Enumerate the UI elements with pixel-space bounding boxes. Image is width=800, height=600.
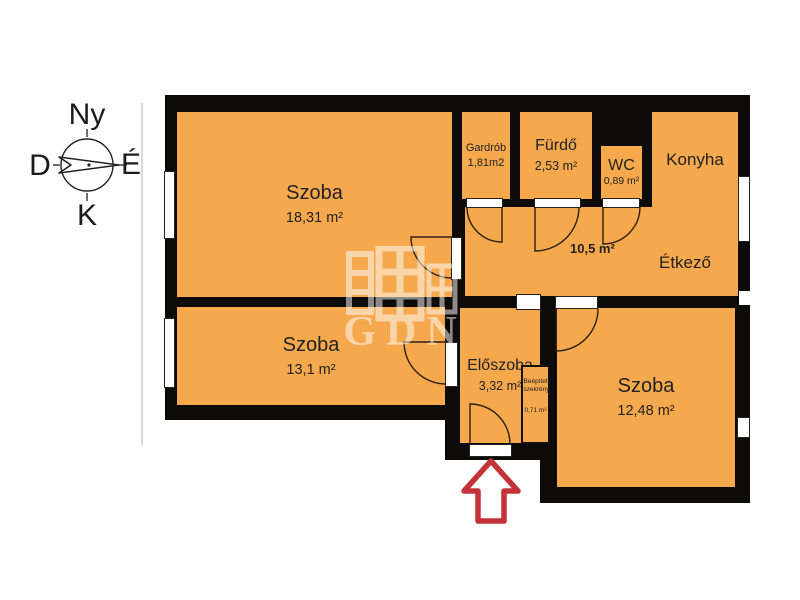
room-area: 18,31 m²: [286, 210, 343, 226]
window-left-upper: [164, 171, 175, 239]
room-name: Szoba: [283, 335, 340, 356]
scan-artifact-line: [141, 103, 143, 445]
room-area: 1,81m2: [468, 157, 505, 169]
room-szoba-large: Szoba 18,31 m²: [177, 112, 452, 297]
compass-south-label: D: [29, 149, 51, 182]
room-szoba-mid: Szoba 13,1 m²: [177, 307, 445, 405]
closet-szekreny: Beépített szekrény 0,71 m²: [521, 365, 550, 444]
compass-east-label: K: [77, 199, 97, 232]
entrance-door-threshold: [469, 444, 512, 457]
compass-north-label: É: [121, 148, 141, 181]
room-name: Szoba: [286, 183, 343, 204]
compass-needle: [59, 157, 119, 173]
door-threshold-furdo: [534, 198, 581, 208]
room-area: 0,89 m²: [604, 175, 640, 187]
closet-area: 0,71 m²: [524, 407, 546, 414]
entrance-arrow: [455, 450, 527, 530]
hall-area: 10,5 m²: [570, 241, 615, 256]
compass-center-dot: [87, 163, 90, 166]
room-name: Fürdő: [535, 138, 577, 155]
wall-seam: [739, 291, 750, 305]
room-area: 12,48 m²: [617, 403, 674, 419]
door-threshold-szoba-small: [555, 296, 598, 309]
opening-hall-eloszoba: [516, 294, 541, 310]
room-name-etkezo: Étkező: [640, 253, 730, 273]
closet-name: Beépített szekrény: [524, 378, 548, 394]
room-name: Gardrób: [466, 142, 506, 154]
door-threshold-gardrob: [466, 198, 503, 208]
room-hall-etkezo: 10,5 m² Étkező: [465, 207, 738, 296]
room-name: WC: [608, 158, 635, 175]
door-threshold-szoba-large: [451, 237, 462, 280]
window-right-upper: [738, 176, 750, 242]
floor-plan: Szoba 18,31 m² Gardrób 1,81m2 Fürdő 2,53…: [0, 0, 800, 600]
room-name: Szoba: [618, 376, 675, 397]
room-furdo: Fürdő 2,53 m²: [520, 112, 592, 199]
compass-west-label: Ny: [69, 98, 106, 131]
room-area: 3,32 m²: [479, 379, 521, 393]
room-wc: WC 0,89 m²: [601, 146, 642, 199]
room-gardrob: Gardrób 1,81m2: [462, 112, 510, 199]
door-threshold-szoba-mid: [445, 342, 458, 387]
room-konyha: Konyha: [652, 112, 738, 207]
window-right-lower: [737, 417, 750, 438]
door-threshold-wc: [602, 198, 640, 208]
room-name: Konyha: [666, 150, 724, 170]
room-area: 2,53 m²: [535, 159, 577, 173]
room-szoba-small: Szoba 12,48 m²: [557, 308, 735, 487]
entrance-arrow-shape: [464, 461, 518, 521]
room-area: 13,1 m²: [286, 362, 335, 378]
compass-circle: [61, 139, 113, 191]
window-left-lower: [164, 318, 175, 388]
